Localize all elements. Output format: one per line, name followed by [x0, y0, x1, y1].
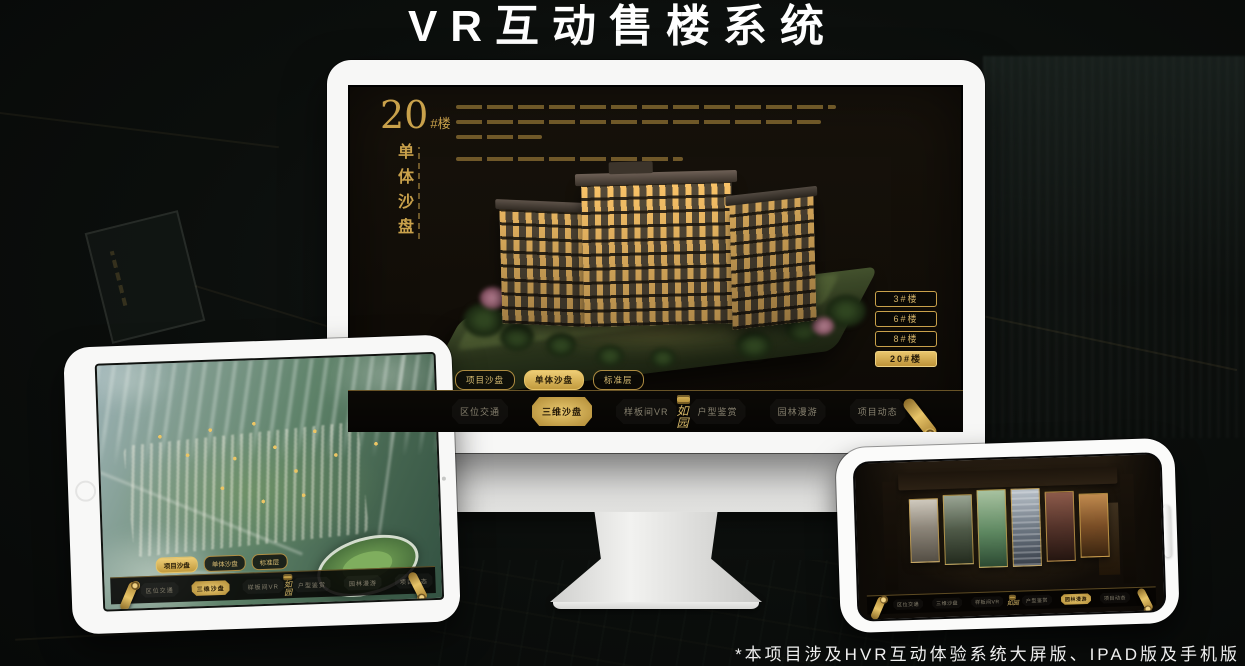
floor-button[interactable]: 3#楼 [875, 291, 937, 307]
phone-side-button [1163, 504, 1172, 556]
nav-item[interactable]: 园林漫游 [344, 574, 383, 590]
nav-item[interactable]: 园林漫游 [1061, 593, 1091, 605]
phone-mockup: 区位交通 三维沙盘 样板间VR 如园 户型鉴赏 园林漫游 [835, 438, 1180, 634]
nav-item[interactable]: 三维沙盘 [191, 580, 230, 596]
nav-item[interactable]: 户型鉴赏 [690, 399, 746, 424]
seal-icon [677, 395, 690, 404]
gallery-panel[interactable] [1078, 493, 1109, 558]
building-wing-right [729, 195, 816, 330]
panorama-panel-gallery [907, 482, 1110, 574]
nav-right-group: 户型鉴赏 园林漫游 项目动态 [690, 399, 906, 424]
tree [650, 348, 676, 368]
view-tab[interactable]: 单体沙盘 [524, 370, 584, 390]
tree [463, 303, 505, 337]
phone-screen: 区位交通 三维沙盘 样板间VR 如园 户型鉴赏 园林漫游 [853, 452, 1167, 622]
brand-logo: 如园 [677, 395, 690, 429]
building-number-suffix: #楼 [430, 116, 450, 131]
view-tab[interactable]: 单体沙盘 [203, 555, 246, 572]
nav-item[interactable]: 园林漫游 [770, 399, 826, 424]
gallery-panel[interactable] [1044, 491, 1075, 562]
tree [500, 323, 534, 351]
nav-left-group: 区位交通 三维沙盘 样板间VR [452, 397, 677, 426]
nav-item[interactable]: 样板间VR [971, 596, 1004, 608]
tree [736, 331, 772, 359]
nav-item[interactable]: 样板间VR [242, 578, 284, 594]
background-plaque [85, 210, 206, 344]
nav-left-group: 区位交通 三维沙盘 样板间VR [140, 578, 284, 598]
monitor-bezel: 20#楼 单体沙盘 [327, 60, 985, 453]
floor-button[interactable]: 8#楼 [875, 331, 937, 347]
nav-item[interactable]: 户型鉴赏 [1022, 594, 1052, 606]
floor-selector: 3#楼 6#楼 8#楼 20#楼 [875, 291, 937, 367]
building-main-block [581, 181, 735, 327]
building-3d-render[interactable] [408, 155, 898, 400]
building-wing-left [499, 208, 586, 327]
view-tab[interactable]: 标准层 [251, 553, 287, 570]
view-tab[interactable]: 项目沙盘 [155, 556, 198, 573]
brand-logo-text: 如园 [677, 405, 690, 429]
view-tab[interactable]: 项目沙盘 [455, 370, 515, 390]
interior-column [1121, 474, 1137, 584]
promo-canvas: VR互动售楼系统 20#楼 单体沙盘 [0, 0, 1245, 666]
interior-column [883, 481, 899, 591]
view-tab[interactable]: 标准层 [593, 370, 644, 390]
footnote-text: *本项目涉及HVR互动体验系统大屏版、IPAD版及手机版 [735, 640, 1240, 665]
monitor-stand-neck [550, 512, 762, 602]
nav-item[interactable]: 项目动态 [1100, 592, 1130, 604]
tree [596, 345, 624, 367]
background-road-line [0, 110, 279, 149]
monitor-bottom-nav: 区位交通 三维沙盘 样板间VR 如园 户型鉴赏 [348, 390, 963, 432]
sandbox-view-tabs: 项目沙盘 单体沙盘 标准层 [455, 370, 644, 390]
background-cityscape [983, 56, 1245, 438]
nav-left-group: 区位交通 三维沙盘 样板间VR [893, 596, 1004, 610]
brand-logo: 如园 [1007, 595, 1019, 607]
nav-item[interactable]: 项目动态 [850, 399, 906, 424]
gallery-panel[interactable] [908, 498, 939, 563]
gallery-panel[interactable] [1010, 488, 1041, 567]
seal-icon [284, 573, 293, 579]
tree [546, 333, 576, 357]
floor-button[interactable]: 20#楼 [875, 351, 937, 367]
nav-item[interactable]: 区位交通 [893, 598, 923, 610]
nav-item[interactable]: 户型鉴赏 [293, 576, 332, 592]
nav-item[interactable]: 区位交通 [140, 581, 179, 597]
floor-button[interactable]: 6#楼 [875, 311, 937, 327]
gallery-panel[interactable] [942, 494, 973, 565]
background-road-line [963, 311, 1237, 371]
building-headline: 20#楼 [380, 95, 451, 135]
gallery-panel[interactable] [976, 489, 1007, 568]
nav-item[interactable]: 三维沙盘 [932, 597, 962, 609]
nav-item[interactable]: 区位交通 [452, 399, 508, 424]
tablet-mockup: 项目沙盘 单体沙盘 标准层 区位交通 三维沙盘 样板间VR [63, 334, 461, 634]
brand-logo-text: 如园 [1007, 601, 1019, 607]
nav-item[interactable]: 三维沙盘 [532, 397, 592, 426]
nav-item[interactable]: 样板间VR [616, 399, 677, 424]
nav-right-group: 户型鉴赏 园林漫游 项目动态 [1022, 592, 1130, 606]
tablet-camera-dot [442, 476, 446, 480]
building-number: 20 [380, 93, 428, 137]
tablet-home-button[interactable] [75, 480, 97, 502]
phone-bottom-nav: 区位交通 三维沙盘 样板间VR 如园 户型鉴赏 园林漫游 [867, 586, 1156, 614]
page-title: VR互动售楼系统 [0, 0, 1245, 54]
